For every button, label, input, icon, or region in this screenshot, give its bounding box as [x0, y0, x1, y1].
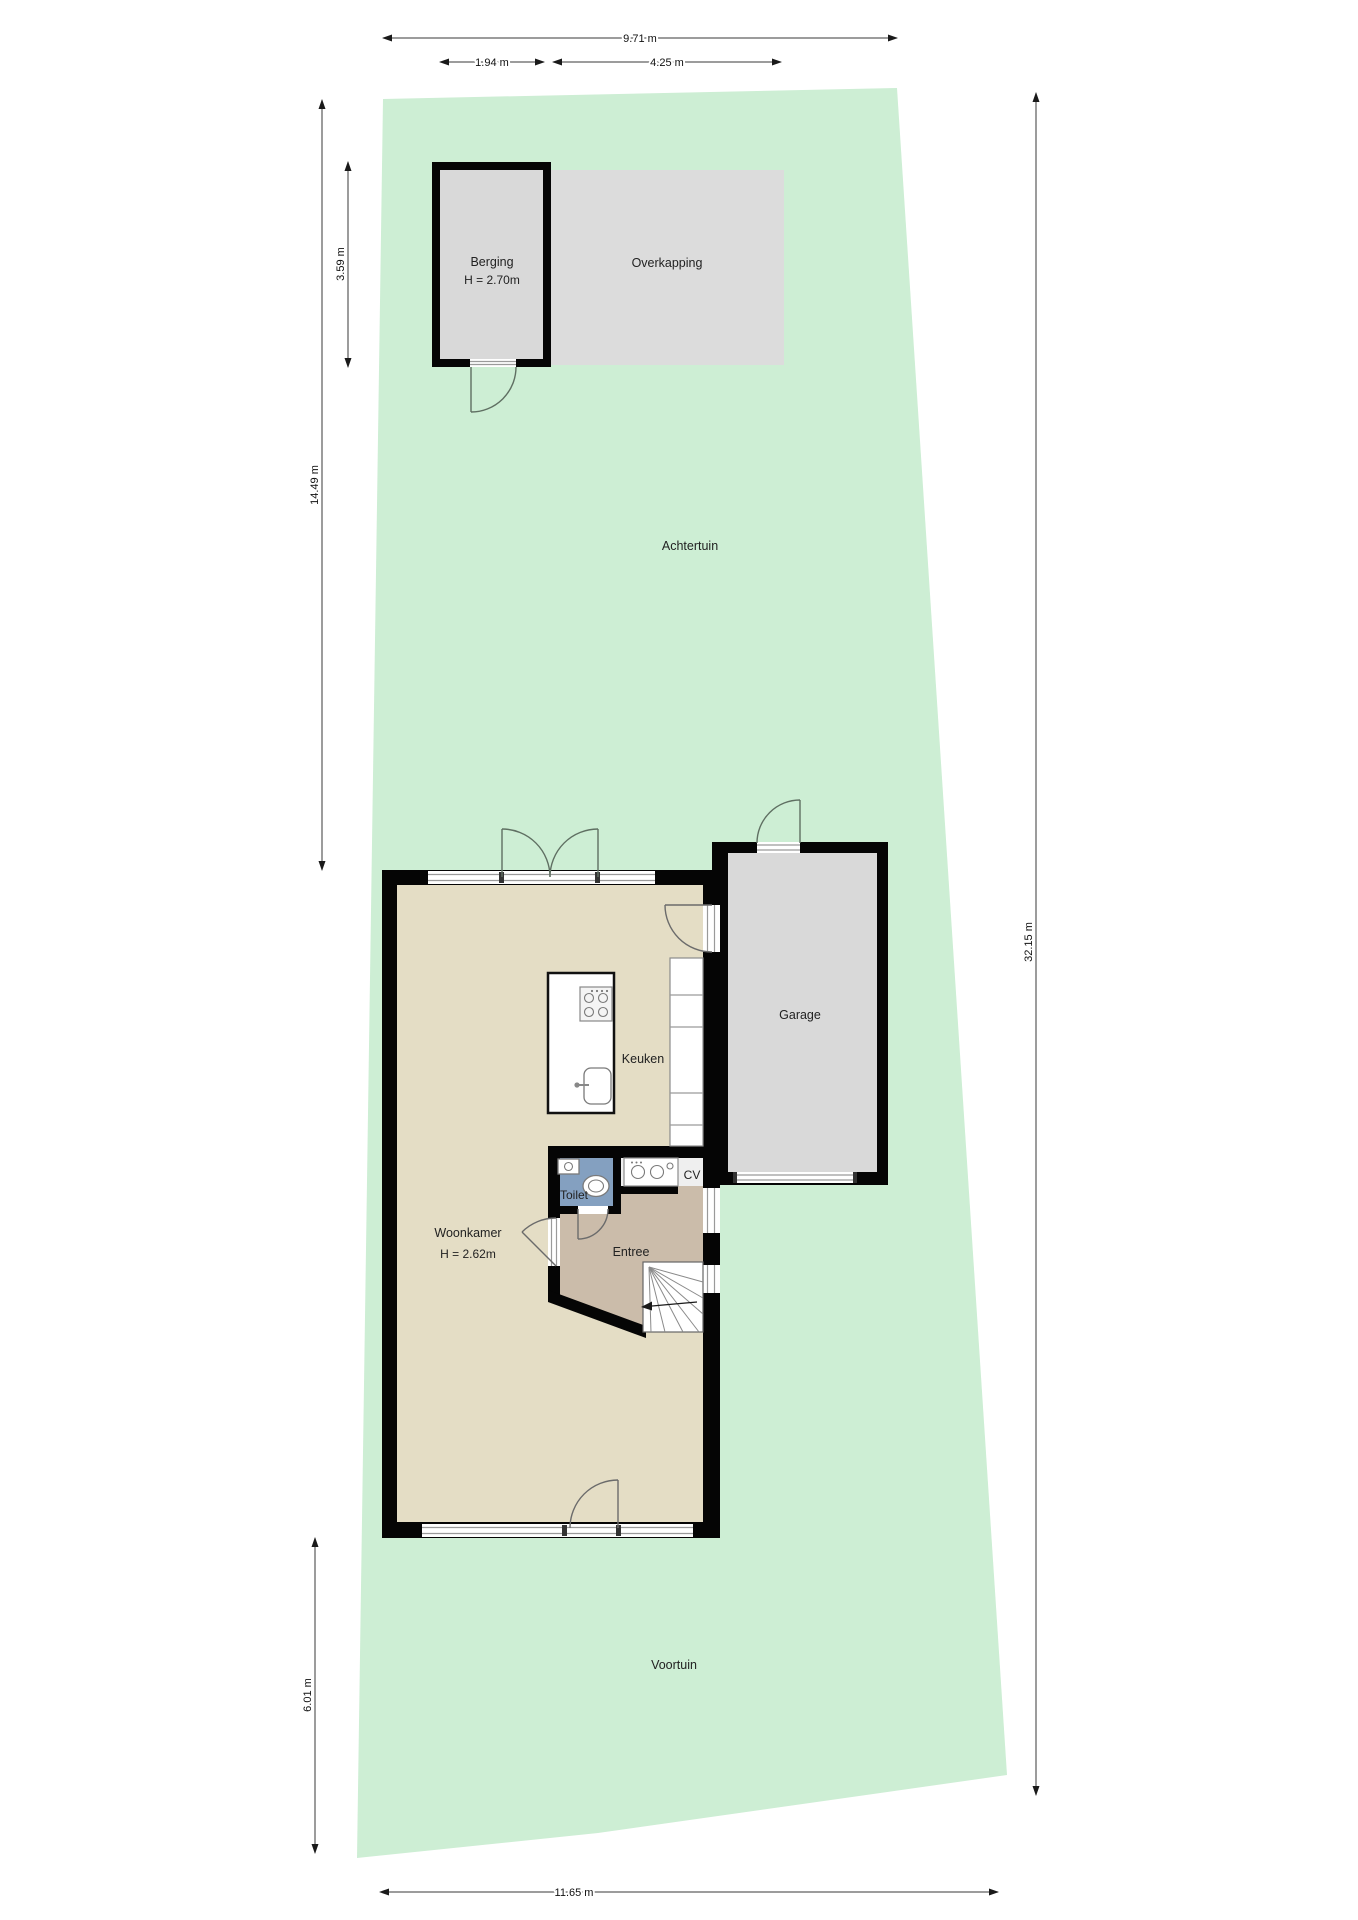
- dim-plot-depth-right: 32.15 m: [1023, 93, 1036, 1795]
- entree-label: Entree: [613, 1245, 650, 1259]
- dim-berging-width: 1.94 m: [440, 57, 544, 69]
- cv-units-icon: [624, 1158, 678, 1186]
- dim-voortuin-depth: 6.01 m: [302, 1538, 315, 1853]
- garage-door-opening: [757, 842, 800, 853]
- side-window: [703, 1265, 720, 1293]
- overkapping-label: Overkapping: [632, 256, 703, 270]
- dim-plot-width-top: 9.71 m: [383, 33, 897, 45]
- dim-overkapping-width: 4.25 m: [553, 57, 781, 69]
- dim-plot-width-top-label: 9.71 m: [623, 33, 657, 45]
- achtertuin-label: Achtertuin: [662, 539, 718, 553]
- dim-achtertuin-depth: 14.49 m: [309, 100, 322, 870]
- stairs: [641, 1262, 703, 1332]
- washbasin-icon: [558, 1159, 579, 1174]
- garage-room: Garage: [712, 800, 888, 1185]
- wall-cv-bottom: [621, 1186, 678, 1194]
- kitchen-counter: [670, 958, 703, 1146]
- dim-plot-width-bottom-label: 11.65 m: [555, 1887, 594, 1899]
- garage-label: Garage: [779, 1008, 821, 1022]
- cv-room: CV: [621, 1158, 703, 1186]
- dim-plot-width-bottom: 11.65 m: [380, 1887, 998, 1899]
- dim-berging-depth: 3.59 m: [335, 162, 348, 367]
- rear-window-strip: [428, 871, 655, 884]
- wall-kitchen-hall: [548, 1146, 703, 1158]
- dim-plot-depth-right-label: 32.15 m: [1023, 922, 1035, 962]
- woonkamer-label: Woonkamer: [434, 1226, 501, 1240]
- voortuin-label: Voortuin: [651, 1658, 697, 1672]
- berging-door-opening: [470, 359, 516, 367]
- dim-voortuin-depth-label: 6.01 m: [302, 1678, 314, 1712]
- front-window-strip: [422, 1524, 693, 1537]
- dim-berging-width-label: 1.94 m: [475, 57, 509, 69]
- overkapping-room: Overkapping: [551, 170, 784, 365]
- garage-window: [734, 1172, 856, 1183]
- livingroom-door-opening: [548, 1218, 560, 1266]
- wall-toilet-cv: [613, 1158, 621, 1214]
- keuken-label: Keuken: [622, 1052, 664, 1066]
- kitchen-island: [548, 973, 614, 1113]
- floorplan-canvas: Achtertuin Voortuin Overkapping Berging …: [0, 0, 1358, 1920]
- woonkamer-height-label: H = 2.62m: [440, 1247, 496, 1261]
- side-window-opening: [703, 1265, 720, 1293]
- cv-label: CV: [684, 1168, 701, 1182]
- berging-height-label: H = 2.70m: [464, 273, 520, 287]
- kitchen-door-opening: [703, 905, 720, 952]
- dim-overkapping-width-label: 4.25 m: [650, 57, 684, 69]
- front-door-opening: [703, 1188, 720, 1233]
- toilet-label: Toilet: [560, 1188, 589, 1202]
- toilet-door-opening: [578, 1206, 608, 1214]
- stove-icon: [580, 987, 612, 1021]
- berging-label: Berging: [470, 255, 513, 269]
- dim-achtertuin-depth-label: 14.49 m: [309, 465, 321, 505]
- floorplan-page: Achtertuin Voortuin Overkapping Berging …: [0, 0, 1358, 1920]
- dim-berging-depth-label: 3.59 m: [335, 247, 347, 281]
